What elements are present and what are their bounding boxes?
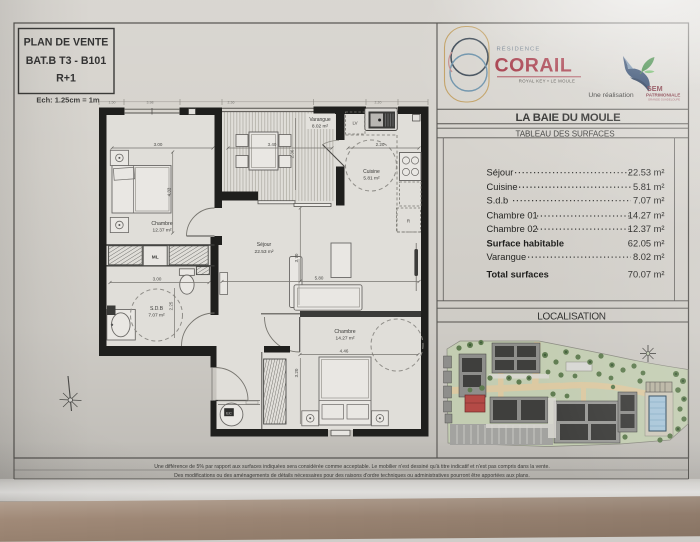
svg-text:Cuisine: Cuisine: [363, 169, 380, 175]
svg-text:R: R: [407, 219, 410, 224]
svg-text:7.07 m²: 7.07 m²: [148, 313, 165, 319]
svg-text:LOCALISATION: LOCALISATION: [537, 312, 606, 323]
svg-text:8.02 m²: 8.02 m²: [633, 252, 665, 262]
svg-text:5.80: 5.80: [315, 275, 324, 280]
svg-text:Varangue: Varangue: [309, 117, 331, 123]
svg-text:14.27 m²: 14.27 m²: [628, 211, 665, 221]
svg-text:5.81 m²: 5.81 m²: [633, 182, 665, 192]
svg-text:3.20: 3.20: [294, 368, 299, 377]
svg-text:R+1: R+1: [56, 73, 76, 85]
svg-text:3.40: 3.40: [268, 142, 277, 147]
svg-text:S.d.b: S.d.b: [487, 195, 509, 205]
svg-text:PLAN DE VENTE: PLAN DE VENTE: [24, 37, 109, 49]
svg-text:2.20: 2.20: [375, 101, 382, 105]
svg-text:TABLEAU DES SURFACES: TABLEAU DES SURFACES: [515, 129, 615, 138]
svg-text:Chambre 01: Chambre 01: [487, 211, 538, 221]
svg-text:Chambre: Chambre: [151, 221, 172, 227]
svg-text:Une différence de 5% par rappo: Une différence de 5% par rapport aux sur…: [154, 464, 550, 470]
svg-text:8.02 m²: 8.02 m²: [312, 124, 329, 130]
svg-text:LV: LV: [352, 121, 357, 126]
svg-text:14.27 m²: 14.27 m²: [336, 336, 355, 342]
svg-text:EC: EC: [226, 411, 232, 416]
svg-text:ROYAL KEY • LE MOULE: ROYAL KEY • LE MOULE: [519, 78, 575, 83]
svg-text:3.70: 3.70: [294, 253, 299, 262]
svg-text:Chambre 02: Chambre 02: [487, 224, 538, 234]
svg-text:Surface habitable: Surface habitable: [487, 238, 565, 248]
svg-text:CORAIL: CORAIL: [495, 55, 573, 77]
svg-text:BAT.B T3 - B101: BAT.B T3 - B101: [26, 55, 107, 67]
svg-text:3.00: 3.00: [154, 142, 163, 147]
svg-text:ML: ML: [152, 255, 159, 261]
svg-text:3.00: 3.00: [153, 276, 162, 281]
svg-text:Ech: 1.25cm = 1m: Ech: 1.25cm = 1m: [36, 96, 99, 105]
svg-text:1.50: 1.50: [109, 101, 116, 105]
svg-text:7.07 m²: 7.07 m²: [633, 195, 665, 205]
svg-text:3.98: 3.98: [147, 101, 154, 105]
svg-text:Total surfaces: Total surfaces: [487, 269, 549, 279]
svg-text:12.37 m²: 12.37 m²: [153, 228, 172, 234]
svg-text:S.D.B: S.D.B: [150, 306, 164, 312]
svg-text:Séjour: Séjour: [257, 242, 272, 248]
svg-text:22.53 m²: 22.53 m²: [255, 249, 274, 255]
svg-text:4.46: 4.46: [340, 348, 349, 353]
svg-text:Varangue: Varangue: [487, 252, 527, 262]
svg-text:22.53 m²: 22.53 m²: [628, 167, 665, 177]
svg-text:5.81 m²: 5.81 m²: [363, 176, 380, 182]
svg-text:RÉSIDENCE: RÉSIDENCE: [497, 46, 541, 53]
svg-text:2.36: 2.36: [289, 149, 294, 158]
svg-text:4.33: 4.33: [167, 187, 172, 196]
svg-text:70.07 m²: 70.07 m²: [628, 269, 665, 279]
svg-text:62.05 m²: 62.05 m²: [628, 238, 665, 248]
svg-text:2.25: 2.25: [168, 301, 173, 310]
svg-text:LA BAIE DU MOULE: LA BAIE DU MOULE: [516, 112, 622, 124]
svg-text:Une réalisation: Une réalisation: [588, 92, 634, 99]
svg-text:GRANDE GUADELOUPE: GRANDE GUADELOUPE: [648, 98, 680, 102]
svg-text:Des modifications ou des aména: Des modifications ou des aménagements de…: [174, 473, 530, 479]
svg-text:Chambre: Chambre: [334, 329, 355, 335]
svg-text:Séjour: Séjour: [487, 167, 514, 177]
svg-text:Cuisine: Cuisine: [487, 182, 518, 192]
svg-text:2.20: 2.20: [376, 142, 385, 147]
svg-text:2.36: 2.36: [228, 101, 235, 105]
svg-text:12.37 m²: 12.37 m²: [628, 224, 665, 234]
